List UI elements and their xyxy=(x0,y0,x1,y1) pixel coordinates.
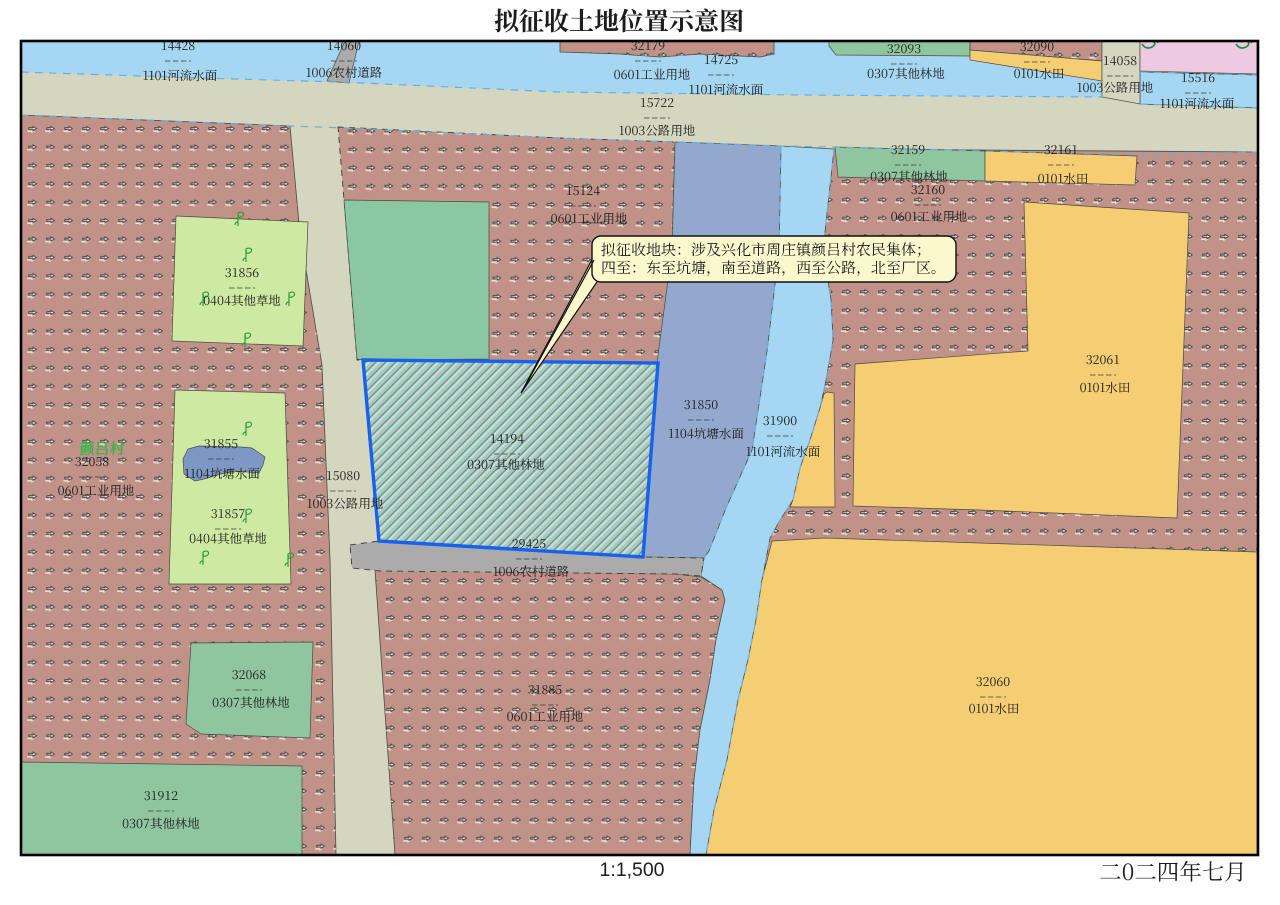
svg-text:32060: 32060 xyxy=(976,672,1011,690)
svg-text:1003公路用地: 1003公路用地 xyxy=(1077,78,1154,96)
svg-text:0601工业用地: 0601工业用地 xyxy=(507,707,584,725)
svg-text:1003公路用地: 1003公路用地 xyxy=(619,121,696,139)
svg-text:0307其他林地: 0307其他林地 xyxy=(122,814,200,832)
svg-text:0101水田: 0101水田 xyxy=(1080,378,1131,396)
svg-text:1104坑塘水面: 1104坑塘水面 xyxy=(668,424,744,442)
svg-text:14428: 14428 xyxy=(161,36,196,54)
svg-text:15080: 15080 xyxy=(326,466,361,484)
svg-text:14060: 14060 xyxy=(327,36,362,54)
svg-text:14725: 14725 xyxy=(704,50,739,68)
svg-text:0101水田: 0101水田 xyxy=(1014,64,1065,82)
svg-text:1101河流水面: 1101河流水面 xyxy=(143,66,218,84)
svg-text:29425: 29425 xyxy=(512,534,547,552)
svg-text:31912: 31912 xyxy=(144,786,179,804)
svg-text:31885: 31885 xyxy=(528,680,563,698)
svg-text:31855: 31855 xyxy=(204,434,239,452)
svg-text:0101水田: 0101水田 xyxy=(969,699,1020,717)
svg-text:拟征收土地位置示意图: 拟征收土地位置示意图 xyxy=(494,2,744,38)
svg-text:1101河流水面: 1101河流水面 xyxy=(689,80,764,98)
svg-text:1006农村道路: 1006农村道路 xyxy=(493,562,570,580)
svg-text:15722: 15722 xyxy=(640,93,675,111)
svg-text:1101河流水面: 1101河流水面 xyxy=(1160,94,1235,112)
svg-text:0601工业用地: 0601工业用地 xyxy=(551,209,628,227)
svg-text:1:1,500: 1:1,500 xyxy=(599,859,664,881)
svg-text:32061: 32061 xyxy=(1086,350,1121,368)
svg-text:0307其他林地: 0307其他林地 xyxy=(212,693,290,711)
svg-text:31856: 31856 xyxy=(225,263,260,281)
svg-text:0601工业用地: 0601工业用地 xyxy=(891,207,968,225)
svg-text:0307其他林地: 0307其他林地 xyxy=(467,455,545,473)
svg-text:32159: 32159 xyxy=(891,140,926,158)
svg-text:0404其他草地: 0404其他草地 xyxy=(203,291,281,309)
svg-text:32179: 32179 xyxy=(631,36,666,54)
svg-text:31900: 31900 xyxy=(763,411,798,429)
svg-text:颜吕村: 颜吕村 xyxy=(79,438,124,459)
svg-text:32068: 32068 xyxy=(232,665,267,683)
svg-text:14194: 14194 xyxy=(490,429,525,447)
svg-text:四至：东至坑塘，南至道路，西至公路，北至厂区。: 四至：东至坑塘，南至道路，西至公路，北至厂区。 xyxy=(601,257,946,278)
svg-text:32160: 32160 xyxy=(911,180,946,198)
svg-text:0101水田: 0101水田 xyxy=(1038,169,1089,187)
svg-text:1104坑塘水面: 1104坑塘水面 xyxy=(184,464,260,482)
svg-text:1003公路用地: 1003公路用地 xyxy=(307,494,384,512)
svg-text:0307其他林地: 0307其他林地 xyxy=(867,64,945,82)
svg-text:31850: 31850 xyxy=(684,395,719,413)
svg-text:31857: 31857 xyxy=(211,504,246,522)
svg-text:1006农村道路: 1006农村道路 xyxy=(306,63,383,81)
svg-text:32161: 32161 xyxy=(1044,140,1079,158)
svg-text:0601工业用地: 0601工业用地 xyxy=(58,481,135,499)
svg-text:0601工业用地: 0601工业用地 xyxy=(614,65,691,83)
svg-text:15516: 15516 xyxy=(1181,68,1216,86)
svg-text:0404其他草地: 0404其他草地 xyxy=(189,529,267,547)
svg-text:15124: 15124 xyxy=(566,181,601,199)
svg-text:二0二四年七月: 二0二四年七月 xyxy=(1099,855,1247,887)
svg-text:1101河流水面: 1101河流水面 xyxy=(746,442,821,460)
svg-text:14058: 14058 xyxy=(1103,51,1138,69)
